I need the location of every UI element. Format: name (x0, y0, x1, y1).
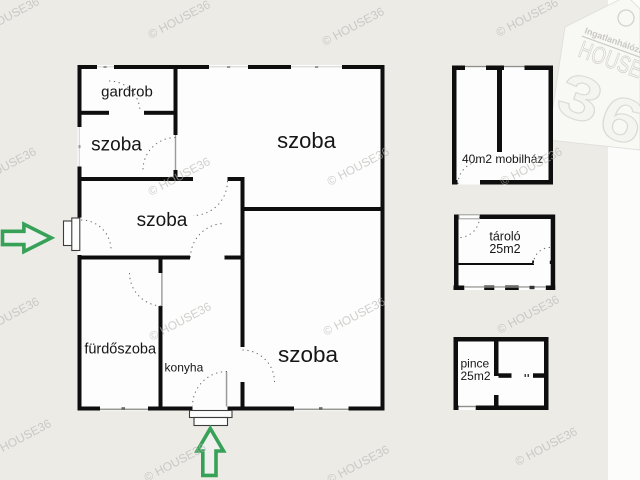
svg-text:fürdőszoba: fürdőszoba (84, 342, 157, 358)
svg-text:szoba: szoba (91, 135, 142, 156)
svg-text:konyha: konyha (165, 361, 204, 375)
svg-text:25m2: 25m2 (489, 242, 520, 256)
svg-text:25m2: 25m2 (461, 369, 491, 383)
svg-text:szoba: szoba (137, 210, 188, 231)
svg-text:gardrob: gardrob (101, 84, 153, 101)
svg-text:szoba: szoba (278, 342, 339, 367)
svg-text:szoba: szoba (277, 128, 336, 153)
